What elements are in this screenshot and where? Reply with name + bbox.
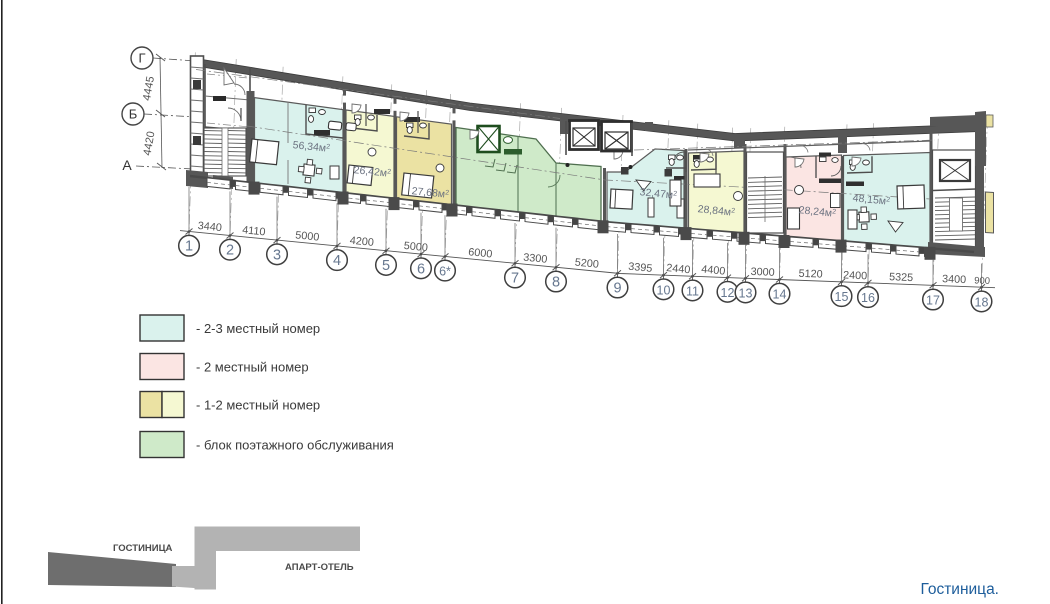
svg-text:7: 7 — [511, 271, 519, 287]
svg-text:15: 15 — [835, 290, 849, 304]
svg-text:3400: 3400 — [942, 273, 966, 286]
svg-text:3395: 3395 — [628, 261, 653, 275]
svg-text:- блок поэтажного обслуживания: - блок поэтажного обслуживания — [196, 438, 394, 453]
svg-text:Г: Г — [138, 51, 145, 66]
svg-text:ГОСТИНИЦА: ГОСТИНИЦА — [113, 543, 173, 554]
svg-text:13: 13 — [739, 286, 753, 300]
svg-text:4200: 4200 — [349, 235, 374, 249]
svg-text:18: 18 — [975, 295, 989, 309]
svg-text:10: 10 — [657, 283, 671, 297]
svg-text:8: 8 — [552, 275, 560, 291]
svg-text:11: 11 — [686, 284, 699, 298]
svg-text:5000: 5000 — [295, 229, 320, 243]
svg-text:5325: 5325 — [889, 271, 913, 284]
svg-text:3300: 3300 — [523, 252, 548, 266]
svg-text:А: А — [122, 157, 132, 173]
svg-text:Б: Б — [129, 107, 138, 122]
svg-text:4400: 4400 — [701, 263, 726, 277]
svg-text:12: 12 — [721, 286, 735, 300]
svg-text:2440: 2440 — [666, 262, 691, 276]
svg-text:3440: 3440 — [197, 220, 222, 234]
svg-text:3: 3 — [273, 247, 281, 263]
svg-text:1: 1 — [185, 239, 193, 255]
svg-text:5000: 5000 — [403, 240, 428, 254]
svg-text:2400: 2400 — [843, 269, 867, 282]
svg-text:17: 17 — [926, 294, 940, 308]
svg-text:14: 14 — [773, 288, 787, 302]
svg-text:4: 4 — [333, 253, 341, 269]
svg-text:Гостиница.: Гостиница. — [920, 581, 999, 598]
svg-text:5: 5 — [382, 258, 390, 274]
svg-text:- 2 местный номер: - 2 местный номер — [196, 360, 309, 375]
svg-text:6: 6 — [417, 261, 425, 277]
svg-text:6000: 6000 — [468, 246, 493, 260]
svg-text:- 2-3 местный номер: - 2-3 местный номер — [196, 321, 320, 336]
svg-text:16: 16 — [861, 291, 875, 305]
svg-text:900: 900 — [974, 275, 990, 287]
svg-text:5200: 5200 — [574, 257, 599, 271]
svg-text:АПАРТ-ОТЕЛЬ: АПАРТ-ОТЕЛЬ — [285, 562, 354, 573]
svg-text:5120: 5120 — [798, 268, 822, 281]
svg-text:6*: 6* — [439, 265, 451, 279]
svg-text:9: 9 — [613, 281, 621, 297]
svg-text:- 1-2 местный номер: - 1-2 местный номер — [196, 398, 320, 413]
svg-text:3000: 3000 — [750, 266, 774, 279]
svg-text:4110: 4110 — [242, 224, 266, 238]
svg-text:2: 2 — [226, 243, 234, 259]
